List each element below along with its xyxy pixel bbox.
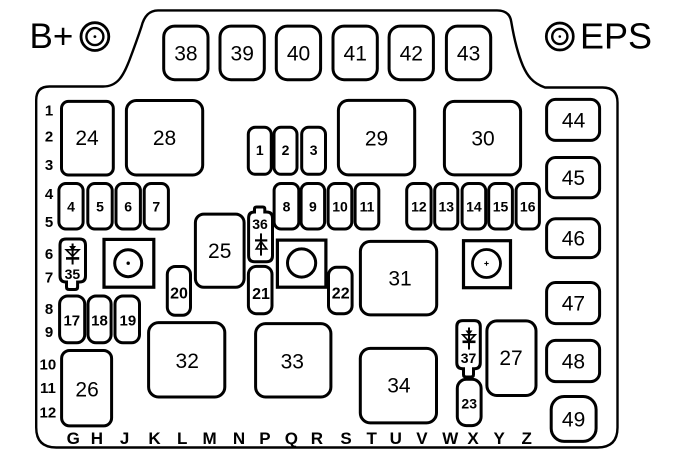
svg-text:3: 3	[310, 142, 318, 158]
svg-text:46: 46	[562, 228, 585, 251]
svg-text:28: 28	[153, 127, 176, 150]
svg-text:20: 20	[170, 286, 188, 303]
svg-text:11: 11	[40, 380, 56, 397]
svg-text:18: 18	[91, 312, 108, 329]
svg-text:43: 43	[457, 43, 480, 66]
svg-text:47: 47	[562, 293, 585, 316]
svg-text:8: 8	[45, 301, 53, 318]
svg-text:23: 23	[461, 396, 477, 412]
svg-text:34: 34	[387, 375, 411, 398]
svg-text:39: 39	[231, 43, 254, 66]
svg-text:22: 22	[332, 285, 350, 302]
svg-text:36: 36	[252, 216, 268, 232]
svg-text:49: 49	[562, 409, 585, 432]
svg-text:45: 45	[562, 167, 585, 190]
svg-text:17: 17	[63, 312, 80, 329]
svg-text:8: 8	[283, 199, 291, 215]
svg-text:13: 13	[439, 199, 455, 215]
svg-text:27: 27	[499, 347, 522, 370]
svg-text:5: 5	[96, 199, 104, 215]
svg-text:7: 7	[152, 199, 160, 215]
svg-text:1: 1	[45, 103, 53, 120]
svg-text:10: 10	[40, 356, 57, 373]
svg-text:16: 16	[520, 199, 536, 215]
svg-text:14: 14	[466, 199, 482, 215]
svg-text:T: T	[367, 429, 378, 448]
svg-text:26: 26	[75, 379, 98, 402]
svg-text:J: J	[120, 429, 129, 448]
svg-text:Z: Z	[522, 429, 532, 448]
svg-text:M: M	[203, 429, 217, 448]
svg-text:2: 2	[45, 129, 53, 146]
svg-text:25: 25	[208, 240, 231, 263]
svg-text:B+: B+	[30, 17, 74, 56]
svg-text:Q: Q	[285, 429, 298, 448]
svg-text:4: 4	[45, 186, 54, 203]
svg-text:9: 9	[45, 324, 53, 341]
svg-text:10: 10	[332, 199, 348, 215]
svg-text:L: L	[177, 429, 187, 448]
svg-text:S: S	[340, 429, 351, 448]
svg-text:29: 29	[365, 128, 388, 151]
svg-text:P: P	[259, 429, 270, 448]
svg-text:40: 40	[287, 43, 310, 66]
svg-text:7: 7	[45, 269, 53, 286]
svg-text:X: X	[467, 429, 479, 448]
svg-text:U: U	[390, 429, 402, 448]
svg-text:Y: Y	[494, 429, 506, 448]
svg-text:W: W	[442, 429, 459, 448]
svg-text:5: 5	[45, 214, 53, 231]
svg-text:42: 42	[400, 43, 423, 66]
svg-text:35: 35	[65, 266, 81, 282]
svg-text:3: 3	[45, 157, 53, 174]
svg-text:V: V	[416, 429, 428, 448]
svg-text:1: 1	[256, 142, 264, 158]
svg-text:38: 38	[174, 43, 197, 66]
svg-text:K: K	[148, 429, 161, 448]
svg-text:4: 4	[67, 199, 75, 215]
svg-text:15: 15	[493, 199, 509, 215]
svg-text:12: 12	[40, 405, 57, 422]
svg-text:33: 33	[281, 350, 304, 373]
svg-text:30: 30	[471, 128, 494, 151]
svg-text:44: 44	[562, 109, 586, 132]
svg-text:19: 19	[120, 312, 137, 329]
svg-text:21: 21	[252, 286, 270, 303]
svg-text:11: 11	[360, 199, 375, 215]
svg-text:41: 41	[344, 43, 367, 66]
svg-text:24: 24	[75, 127, 99, 150]
svg-text:37: 37	[461, 350, 477, 366]
svg-text:2: 2	[282, 142, 290, 158]
svg-text:R: R	[311, 429, 323, 448]
svg-text:G: G	[67, 429, 80, 448]
svg-text:N: N	[233, 429, 245, 448]
svg-text:12: 12	[411, 199, 427, 215]
svg-text:31: 31	[388, 268, 411, 291]
svg-text:48: 48	[562, 351, 585, 374]
svg-text:6: 6	[124, 199, 132, 215]
svg-text:9: 9	[309, 199, 317, 215]
svg-text:32: 32	[176, 350, 199, 373]
svg-text:H: H	[91, 429, 103, 448]
svg-text:6: 6	[45, 246, 53, 263]
svg-text:EPS: EPS	[580, 15, 652, 56]
